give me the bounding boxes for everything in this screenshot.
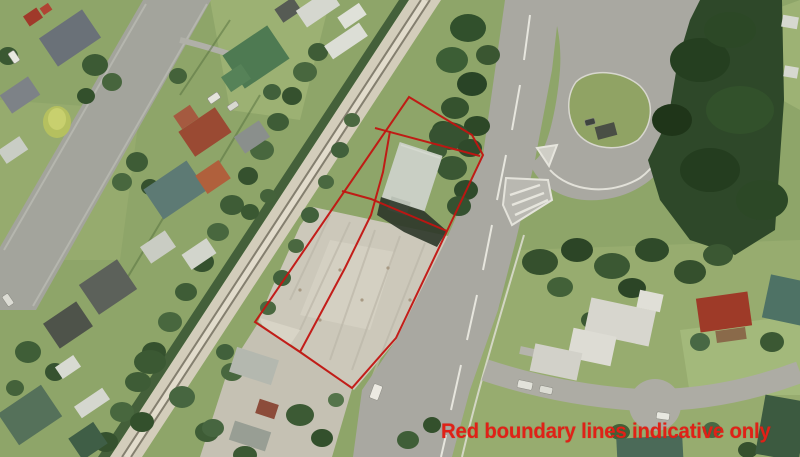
tree-clump [202, 419, 224, 437]
tree-clump [674, 260, 706, 284]
aerial-map-view: Red boundary lines indicative only [0, 0, 800, 457]
tree-clump [301, 207, 319, 223]
tree-clump [331, 142, 349, 158]
tree-clump [48, 108, 66, 130]
tree-clump [77, 88, 95, 104]
tree-clump [736, 180, 788, 220]
tree-clump [126, 152, 148, 172]
tree-clump [476, 45, 500, 65]
tree-clump [397, 431, 419, 449]
tree-clump [169, 386, 195, 408]
tree-clump [134, 350, 166, 374]
tree-clump [318, 175, 334, 189]
tree-clump [238, 167, 258, 185]
tree-clump [561, 238, 593, 262]
tree-clump [547, 277, 573, 297]
tree-clump [175, 283, 197, 301]
tree-clump [311, 429, 333, 447]
tree-clump [207, 223, 229, 241]
tree-clump [423, 417, 441, 433]
tree-clump [263, 84, 281, 100]
tree-clump [82, 54, 108, 76]
tree-clump [286, 404, 314, 426]
tree-clump [436, 47, 468, 73]
tree-clump [158, 312, 182, 332]
tree-clump [450, 14, 486, 42]
tree-clump [15, 341, 41, 363]
tree-clump [110, 402, 134, 422]
tree-clump [437, 156, 467, 180]
tree-clump [703, 244, 733, 266]
indicative-note: Red boundary lines indicative only [441, 420, 771, 444]
tree-clump [220, 195, 244, 215]
tree-clump [760, 332, 784, 352]
tree-clump [293, 62, 317, 82]
tree-clump [652, 104, 692, 136]
tree-clump [216, 344, 234, 360]
tree-clump [130, 412, 154, 432]
tree-clump [267, 113, 289, 131]
tree-clump [706, 86, 774, 134]
tree-clump [522, 249, 558, 275]
building-roof [696, 292, 752, 333]
tree-clump [241, 204, 259, 220]
tree-clump [288, 239, 304, 253]
tree-clump [344, 113, 360, 127]
tree-clump [125, 372, 151, 392]
tree-clump [112, 173, 132, 191]
tree-clump [441, 97, 469, 119]
tree-clump [282, 87, 302, 105]
tree-clump [260, 189, 276, 203]
tree-clump [6, 380, 24, 396]
tree-clump [594, 253, 630, 279]
tree-clump [169, 68, 187, 84]
tree-clump [704, 12, 756, 48]
tree-clump [457, 72, 487, 96]
tree-clump [635, 238, 669, 262]
tree-clump [690, 333, 710, 351]
aerial-photo [0, 0, 800, 457]
tree-clump [102, 73, 122, 91]
tree-clump [680, 148, 740, 192]
tree-clump [328, 393, 344, 407]
